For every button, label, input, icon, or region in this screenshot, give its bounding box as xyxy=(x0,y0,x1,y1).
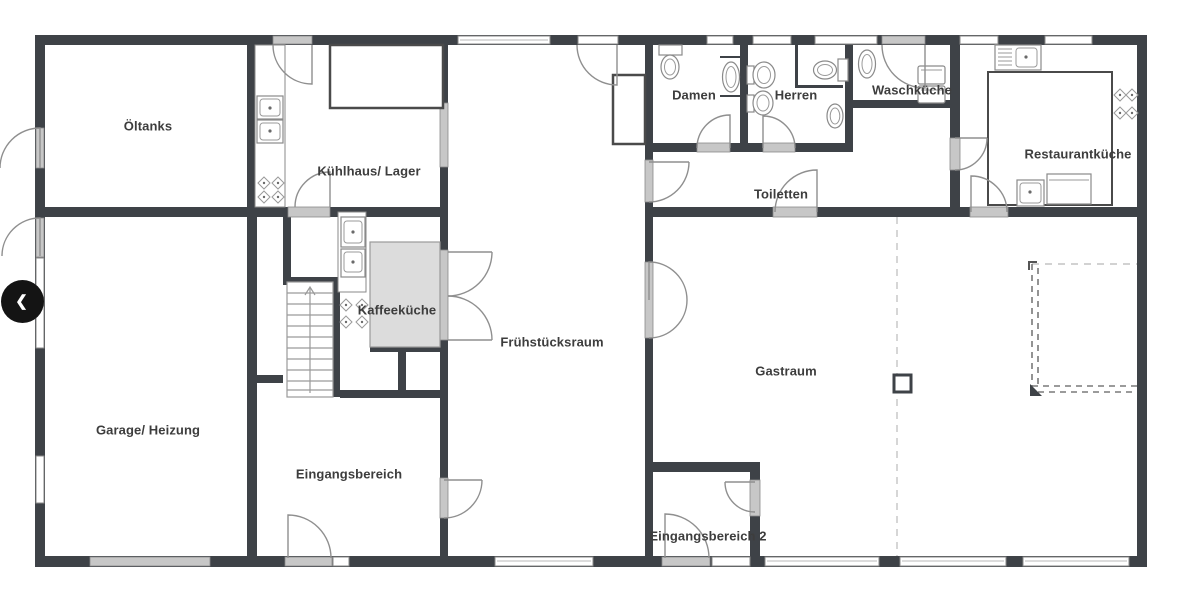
door-swing xyxy=(448,296,492,340)
urinal-icon xyxy=(747,91,773,115)
sink-icon xyxy=(341,249,365,277)
kitchen-block xyxy=(370,242,440,347)
washbasin-icon xyxy=(859,50,876,78)
room-label-garage: Garage/ Heizung xyxy=(96,423,200,438)
toilet-icon xyxy=(814,59,849,81)
room-label-damen: Damen xyxy=(672,88,716,103)
room-label-eingangsbereich2: Eingangsbereich 2 xyxy=(649,529,766,544)
cold-room-outline xyxy=(330,45,443,108)
windows-and-door-sills xyxy=(36,36,1129,566)
room-label-kaffeekueche: Kaffeeküche xyxy=(358,303,436,318)
floorplan-canvas: Öltanks Kühlhaus/ Lager Kaffeeküche Früh… xyxy=(0,0,1200,600)
room-label-oeltanks: Öltanks xyxy=(124,119,172,134)
sink-icon xyxy=(257,96,283,119)
door-swing xyxy=(444,480,482,518)
stove-icon xyxy=(1114,89,1138,119)
dashed-area-outline xyxy=(1029,262,1137,396)
kaffeekueche-fixtures xyxy=(338,212,440,347)
room-label-kuehlhaus: Kühlhaus/ Lager xyxy=(317,164,420,179)
column-marker xyxy=(894,375,911,392)
room-label-fruehstuecksraum: Frühstücksraum xyxy=(500,335,603,350)
washbasin-icon xyxy=(827,104,843,128)
sink-icon xyxy=(257,120,283,143)
duct-shaft-outline xyxy=(613,75,645,144)
counter-appliance-icon xyxy=(1047,174,1091,204)
room-label-gastraum: Gastraum xyxy=(755,364,817,379)
room-label-toiletten: Toiletten xyxy=(754,187,808,202)
door-swing xyxy=(0,128,40,168)
door-swing xyxy=(649,162,689,202)
kuehlhaus-counter xyxy=(255,45,285,207)
urinal-icon xyxy=(747,62,775,88)
toilet-icon xyxy=(659,45,682,79)
washing-machine-icon xyxy=(918,66,945,84)
chevron-left-icon: ❮ xyxy=(15,294,28,309)
room-label-waschkueche: Waschküche xyxy=(872,83,952,98)
stairs-icon xyxy=(287,282,333,397)
floorplan-drawing xyxy=(0,0,1200,600)
sink-drainer-icon xyxy=(995,45,1041,70)
door-swing xyxy=(2,218,40,256)
room-label-herren: Herren xyxy=(775,88,818,103)
gastraum-annotations xyxy=(894,217,1137,556)
sink-icon xyxy=(341,217,365,247)
room-label-eingangsbereich: Eingangsbereich xyxy=(296,467,402,482)
carousel-prev-button[interactable]: ❮ xyxy=(1,280,44,323)
door-swing xyxy=(448,252,492,296)
washbasin-icon xyxy=(723,62,740,92)
door-swing xyxy=(288,515,331,558)
sink-icon xyxy=(1017,180,1044,206)
door-swing xyxy=(649,262,687,338)
door-swing xyxy=(577,45,617,85)
room-label-restaurantkueche: Restaurantküche xyxy=(1025,147,1132,162)
walls xyxy=(35,35,1147,567)
